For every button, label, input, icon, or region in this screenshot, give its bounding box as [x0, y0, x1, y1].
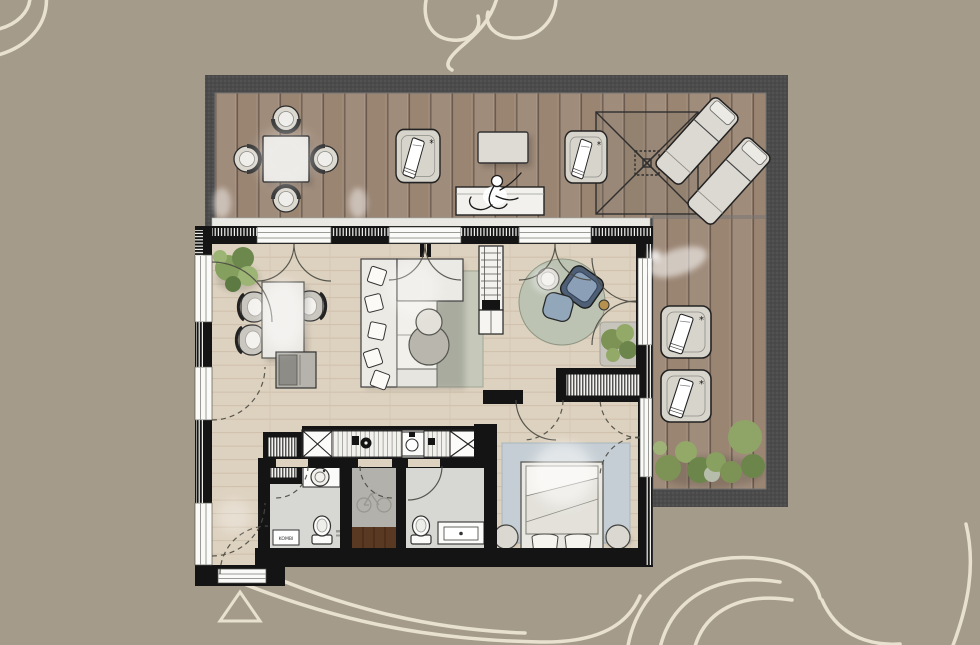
wardrobe: [556, 368, 653, 402]
window-left-2: [195, 367, 212, 420]
washing-machine: [311, 468, 329, 486]
wardrobe-rack: [566, 374, 640, 396]
hatch: [195, 230, 203, 256]
window-right-bedroom: [640, 398, 652, 477]
shrub: [653, 441, 667, 455]
hatch: [646, 345, 653, 398]
counter-fitting: [352, 436, 359, 445]
dining-chair: [236, 325, 265, 355]
hatch: [331, 228, 389, 236]
indoor-plant-2: [600, 322, 640, 366]
shrub: [655, 455, 681, 481]
toilet-1: [312, 516, 332, 544]
door-gap-storage: [358, 459, 392, 467]
entry-mat: [352, 527, 396, 548]
deck-light: [213, 188, 231, 218]
hatch: [646, 477, 653, 565]
floor-plan-image: *: [0, 0, 980, 645]
door-openings: [276, 459, 440, 467]
sideboard: [276, 352, 316, 388]
side-table-glow: [532, 267, 558, 293]
shelf-unit: [479, 246, 503, 334]
plant-leaf: [232, 247, 254, 269]
counter-fitting: [428, 438, 435, 445]
outdoor-chair: [273, 186, 299, 212]
floor-plan-canvas: *: [0, 0, 980, 645]
counter-ribs: [424, 431, 450, 457]
pillow: [364, 293, 383, 312]
lounge-chair-towel-1: [396, 129, 440, 182]
window-left-3: [195, 503, 212, 565]
sofa-arm: [397, 369, 437, 387]
door-post: [427, 244, 431, 257]
deck-beam-core: [649, 250, 661, 262]
corridor-glow: [216, 498, 252, 534]
hatch: [212, 228, 257, 236]
table-glow: [256, 128, 316, 188]
deck-light: [349, 188, 367, 218]
lounge-chair-towel-4: [661, 370, 711, 422]
sink-bowl: [406, 439, 418, 451]
pillow: [368, 322, 387, 341]
indoor-plant-1: [213, 247, 260, 292]
window-top-3: [519, 227, 591, 243]
wall-storage-bath2: [396, 460, 406, 548]
washer-dryer-combi: KOMBI: [273, 530, 299, 545]
door-bottom-left: [218, 569, 266, 583]
hatch: [196, 322, 203, 367]
door-gap-bath2: [408, 459, 440, 467]
window-left-1: [195, 255, 212, 322]
tall-cabinet-left: [303, 431, 332, 457]
vanity-drain: [459, 532, 463, 536]
nightstand-1: [494, 525, 518, 549]
hatch: [196, 420, 203, 503]
sideboard-door: [279, 355, 297, 385]
cabinet-shelf: [268, 437, 297, 457]
lounge-chair-towel-2: [565, 131, 607, 183]
floor-lamp: [599, 300, 609, 310]
shrub-large: [728, 420, 762, 454]
toilet-2: [411, 516, 431, 544]
cooktop-knob: [364, 441, 367, 444]
dining-glow: [261, 279, 305, 351]
plant-leaf: [225, 276, 241, 292]
terrace-side-table: [478, 132, 532, 167]
kombi-label: KOMBI: [279, 536, 294, 542]
wall-bottom-main: [255, 548, 653, 567]
wall-bath1-storage: [340, 460, 352, 548]
window-top-1: [257, 227, 331, 243]
person-head: [492, 176, 503, 187]
wall-bath1-left: [258, 460, 270, 548]
door-gap-bath1: [276, 459, 308, 467]
wall-bath2-bedroom: [484, 455, 497, 548]
nightstand-2: [606, 525, 630, 549]
hatch: [461, 228, 519, 236]
window-top-2: [389, 227, 461, 243]
wall-bedroom-top-left: [483, 390, 523, 404]
side-table-top: [478, 132, 528, 163]
plant-leaf: [619, 341, 637, 359]
plant-leaf: [606, 348, 620, 362]
shelf-base: [482, 300, 500, 310]
lounge-chair-towel-3: [661, 306, 711, 358]
plant-leaf: [616, 324, 634, 342]
vanity: [438, 522, 484, 544]
washing-machine-knob: [323, 470, 325, 472]
sofa-glow: [387, 262, 439, 314]
wall-kitchen-stub: [474, 424, 497, 460]
person-body-fill: [483, 186, 507, 206]
sink-faucet: [409, 432, 415, 437]
hatch: [591, 228, 651, 236]
kitchen-sink: [402, 432, 424, 456]
bed-glow: [531, 442, 595, 506]
counter-back-edge: [302, 426, 487, 430]
shrub: [741, 454, 765, 478]
shrub: [720, 461, 742, 483]
